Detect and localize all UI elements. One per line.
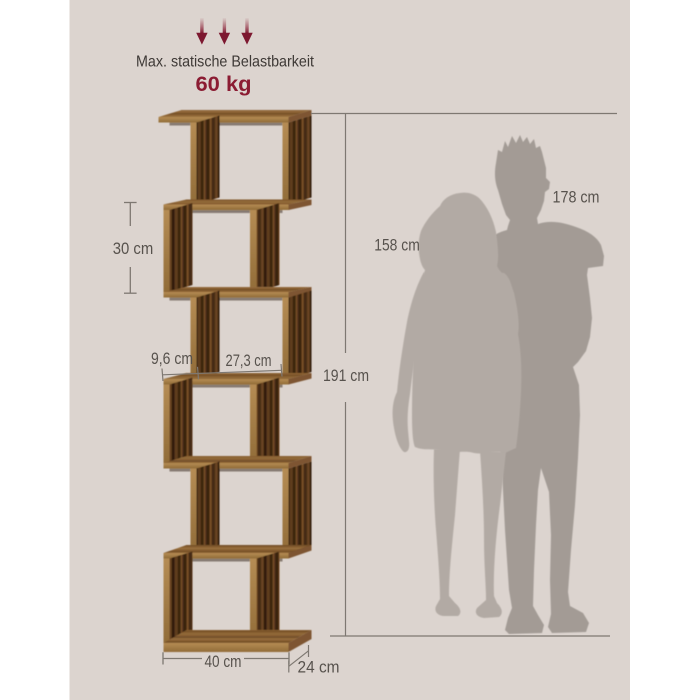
svg-text:191 cm: 191 cm xyxy=(323,366,369,385)
svg-text:24 cm: 24 cm xyxy=(298,658,340,677)
svg-text:158 cm: 158 cm xyxy=(374,236,420,254)
svg-text:30 cm: 30 cm xyxy=(113,239,154,258)
svg-text:40 cm: 40 cm xyxy=(205,652,242,671)
svg-text:Max. statische Belastbarkeit: Max. statische Belastbarkeit xyxy=(136,54,314,71)
svg-text:178 cm: 178 cm xyxy=(553,189,600,207)
svg-text:27,3 cm: 27,3 cm xyxy=(226,351,272,370)
svg-text:60 kg: 60 kg xyxy=(196,72,252,96)
svg-text:9,6 cm: 9,6 cm xyxy=(151,349,193,368)
